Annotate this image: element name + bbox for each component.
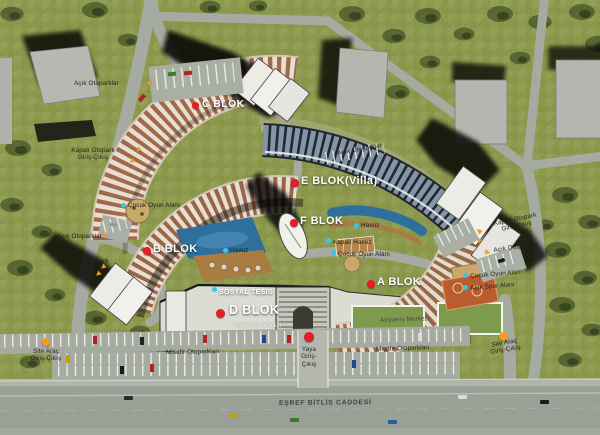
- b-blok-label: B BLOK: [153, 243, 198, 255]
- e-blok-label: E BLOK(Villa): [301, 175, 378, 187]
- cocuk-oyun-west-label: Çocuk Oyun Alanı: [128, 202, 180, 209]
- cocuk-oyun-center-label: Çocuk Oyun Alanı: [338, 251, 390, 258]
- misafir-otoparklari-left: Misafir Otoparkları: [166, 348, 219, 356]
- a-blok-label: A BLOK: [377, 276, 421, 288]
- a-blok-marker: [367, 280, 375, 288]
- street-name: EŞREF BİTLİS CADDESİ: [279, 399, 372, 408]
- d-blok-marker: [216, 309, 225, 318]
- yaya-marker: [304, 332, 314, 342]
- f-blok-label: F BLOK: [300, 215, 343, 227]
- acik-otoparklar-top-left: Açık Otoparklar: [74, 80, 119, 87]
- alisveris-merkezi-label-1: Alışveriş Merkezi: [232, 322, 281, 329]
- site-plan: C BLOK E BLOK(Villa) F BLOK B BLOK A BLO…: [0, 0, 600, 435]
- havuz-east-label: Havuz: [361, 222, 379, 229]
- e-blok-marker: [291, 179, 299, 187]
- kapali-otopark-left-lower: Kapalı Otopark Giriş-Çıkış: [56, 258, 118, 273]
- havuz-east-marker: [354, 223, 359, 228]
- sosyal-tesis-marker: [212, 287, 217, 292]
- kapali-havuz-label: Kapalı Havuz: [333, 239, 372, 246]
- cocuk-oyun-center-marker: [331, 250, 336, 255]
- c-blok-label: C BLOK: [202, 98, 245, 110]
- site-arac-west-marker: [42, 338, 50, 346]
- d-blok-label: D BLOK: [229, 303, 279, 317]
- kapali-otopark-left-upper: Kapalı Otopark Giriş-Çıkış: [62, 147, 124, 162]
- kapali-havuz-marker: [326, 238, 331, 243]
- f-blok-marker: [290, 219, 298, 227]
- acik-otoparklar-left: Açık Otoparklar: [57, 233, 102, 240]
- c-blok-marker: [192, 102, 199, 109]
- sosyal-tesis-label: SOSYAL TESİS: [219, 289, 273, 296]
- site-arac-west-label: Site Araç Giriş-Çıkış: [26, 348, 66, 363]
- cocuk-oyun-east-marker: [463, 273, 468, 278]
- yaya-label: Yaya Giriş-Çıkış: [294, 346, 324, 368]
- acik-spor-marker: [463, 285, 468, 290]
- havuz-center-marker: [223, 248, 228, 253]
- amphitheater: [276, 287, 330, 332]
- cocuk-oyun-west-marker: [121, 203, 126, 208]
- havuz-center-label: Havuz: [230, 247, 248, 254]
- b-blok-marker: [143, 247, 151, 255]
